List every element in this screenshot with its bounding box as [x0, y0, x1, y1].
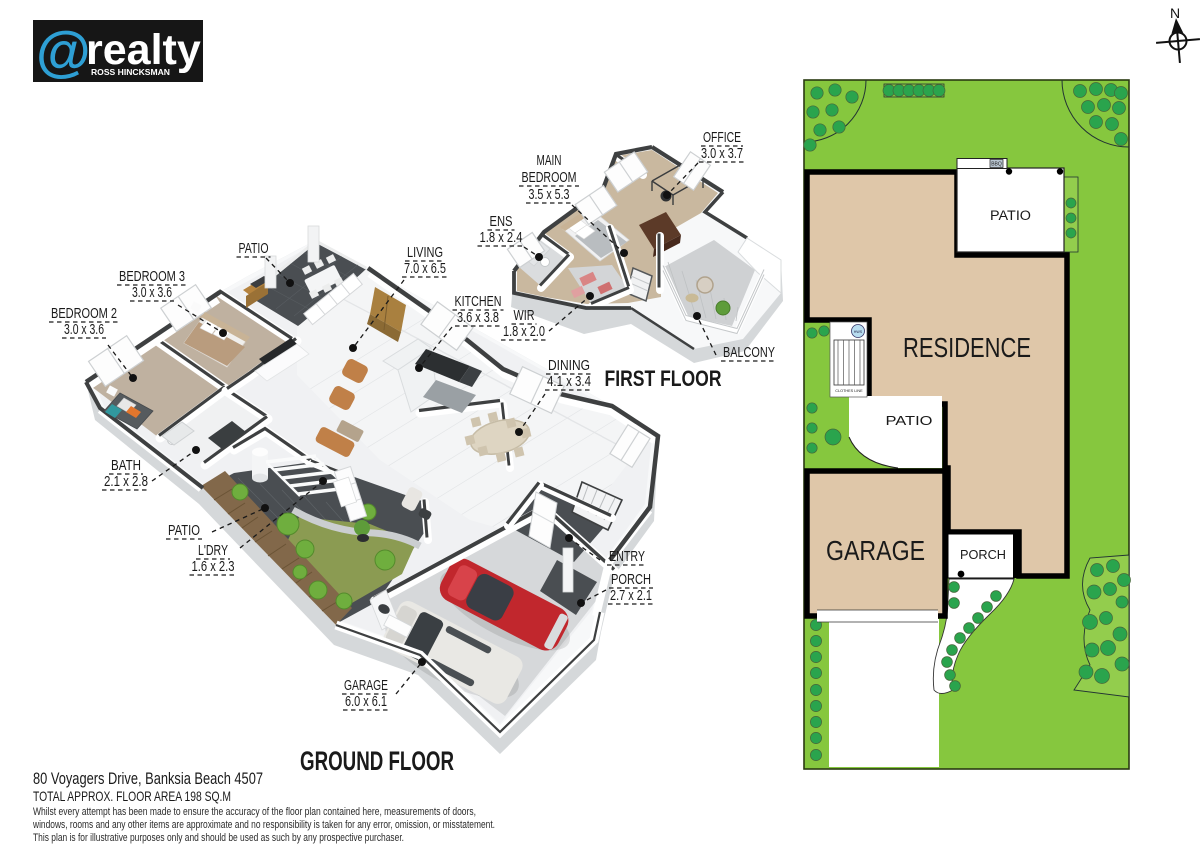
svg-text:ENTRY: ENTRY: [609, 549, 645, 565]
svg-text:WIR: WIR: [514, 308, 535, 324]
svg-text:7.0 x 6.5: 7.0 x 6.5: [404, 261, 446, 277]
svg-text:FIRST FLOOR: FIRST FLOOR: [605, 366, 722, 391]
svg-text:HWS: HWS: [854, 330, 863, 334]
svg-text:L'DRY: L'DRY: [198, 543, 228, 559]
svg-text:2.7 x 2.1: 2.7 x 2.1: [610, 588, 652, 604]
svg-text:4.1 x 3.4: 4.1 x 3.4: [547, 374, 591, 390]
svg-text:BEDROOM: BEDROOM: [522, 170, 577, 186]
svg-text:1.8 x 2.4: 1.8 x 2.4: [480, 230, 523, 246]
svg-text:PATIO: PATIO: [990, 208, 1031, 223]
svg-text:PATIO: PATIO: [239, 241, 269, 257]
svg-text:This plan is for illustrative: This plan is for illustrative purposes o…: [33, 832, 404, 844]
svg-text:2.1 x 2.8: 2.1 x 2.8: [104, 474, 148, 490]
svg-text:OFFICE: OFFICE: [703, 130, 741, 146]
svg-text:3.6 x 3.8: 3.6 x 3.8: [457, 310, 499, 326]
svg-text:ENS: ENS: [490, 214, 513, 230]
svg-text:N: N: [1170, 5, 1180, 21]
svg-text:PATIO: PATIO: [886, 414, 933, 428]
svg-text:@: @: [36, 19, 91, 82]
svg-text:1.8 x 2.0: 1.8 x 2.0: [503, 324, 545, 340]
svg-text:DINING: DINING: [548, 358, 590, 374]
svg-text:3.0 x 3.6: 3.0 x 3.6: [132, 285, 172, 301]
svg-text:windows, rooms and any other i: windows, rooms and any other items are a…: [32, 819, 495, 831]
svg-text:BATH: BATH: [111, 458, 141, 474]
svg-text:BEDROOM 2: BEDROOM 2: [51, 306, 117, 322]
svg-text:ROSS HINCKSMAN: ROSS HINCKSMAN: [91, 67, 170, 77]
svg-text:6.0 x 6.1: 6.0 x 6.1: [345, 694, 387, 710]
svg-text:3.0 x 3.7: 3.0 x 3.7: [701, 146, 743, 162]
svg-text:BALCONY: BALCONY: [723, 345, 775, 361]
svg-text:LIVING: LIVING: [407, 245, 443, 261]
svg-text:TOTAL APPROX. FLOOR AREA 198 S: TOTAL APPROX. FLOOR AREA 198 SQ.M: [33, 788, 231, 804]
svg-text:PATIO: PATIO: [168, 523, 200, 539]
svg-text:3.0 x 3.6: 3.0 x 3.6: [64, 322, 104, 338]
svg-text:BBQ: BBQ: [991, 162, 1002, 168]
svg-text:GARAGE: GARAGE: [826, 535, 925, 566]
svg-text:GROUND FLOOR: GROUND FLOOR: [300, 746, 454, 776]
svg-text:CLOTHES LINE: CLOTHES LINE: [835, 389, 863, 393]
svg-text:RESIDENCE: RESIDENCE: [903, 332, 1031, 363]
svg-text:GARAGE: GARAGE: [344, 678, 388, 694]
svg-text:80 Voyagers Drive, Banksia Bea: 80 Voyagers Drive, Banksia Beach 4507: [33, 770, 263, 788]
svg-text:Whilst every attempt has been: Whilst every attempt has been made to en…: [33, 806, 476, 818]
svg-text:KITCHEN: KITCHEN: [455, 294, 502, 310]
svg-text:PORCH: PORCH: [960, 548, 1006, 562]
svg-text:BEDROOM 3: BEDROOM 3: [119, 269, 185, 285]
svg-text:MAIN: MAIN: [537, 153, 562, 169]
svg-text:1.6 x 2.3: 1.6 x 2.3: [192, 559, 235, 575]
svg-text:PORCH: PORCH: [611, 572, 651, 588]
svg-text:3.5 x 5.3: 3.5 x 5.3: [529, 187, 570, 203]
